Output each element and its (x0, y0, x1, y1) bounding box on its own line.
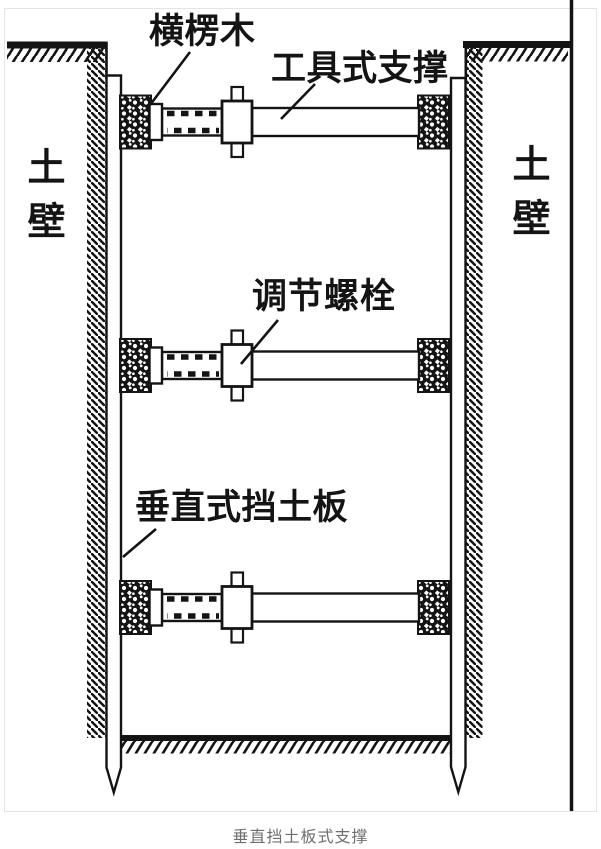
bolt-tab-top (232, 87, 244, 101)
label-wale-timber: 横楞木 (149, 13, 256, 51)
diagram-canvas (0, 0, 601, 849)
leader-line-wale-timber (150, 52, 190, 105)
soil-wall-hatch-left (87, 48, 107, 738)
wale-block-left (120, 581, 151, 634)
trench-bottom (121, 735, 451, 754)
bolt-tab-bottom (232, 629, 244, 643)
bolt-tab-bottom (232, 143, 244, 157)
end-washer (150, 348, 163, 384)
end-washer (150, 590, 163, 626)
retaining-board-right (451, 78, 466, 792)
label-vertical-retaining-board: 垂直式挡土板 (135, 489, 348, 527)
label-tool-type-strut: 工具式支撑 (271, 50, 449, 88)
adjusting-bolt-body (222, 587, 252, 629)
label-adjustment-bolt: 调节螺栓 (252, 278, 396, 316)
label-soil-wall-right: 土壁 (506, 144, 547, 252)
bolt-tab-top (232, 573, 244, 587)
bottom-line (121, 735, 451, 741)
strut-tube (252, 352, 419, 380)
ground-line (7, 42, 108, 49)
bottom-hatch (121, 741, 451, 754)
end-washer (150, 104, 163, 140)
wale-block-left (120, 339, 151, 392)
wale-block-right (418, 581, 449, 634)
wale-block-right (418, 96, 449, 149)
bolt-tab-bottom (232, 387, 244, 401)
leader-line-retaining-board (123, 529, 156, 557)
strut-tube (252, 594, 419, 622)
strut-2 (120, 331, 449, 401)
strut-1 (120, 87, 449, 157)
trench-support-diagram: 横楞木 工具式支撑 调节螺栓 垂直式挡土板 土壁 土壁 垂直挡土板式支撑 (0, 0, 601, 849)
strut-3 (120, 573, 449, 643)
bolt-tab-top (232, 331, 244, 345)
ground-line (463, 41, 572, 48)
figure-caption: 垂直挡土板式支撑 (0, 823, 601, 847)
wale-block-right (418, 339, 449, 392)
retaining-board-left (107, 76, 122, 793)
strut-tube (252, 108, 419, 136)
soil-wall-hatch-right (466, 48, 483, 738)
wale-block-left (120, 96, 151, 149)
adjusting-bolt-body (222, 345, 252, 387)
label-soil-wall-left: 土壁 (21, 147, 62, 255)
adjusting-bolt-body (222, 101, 252, 143)
